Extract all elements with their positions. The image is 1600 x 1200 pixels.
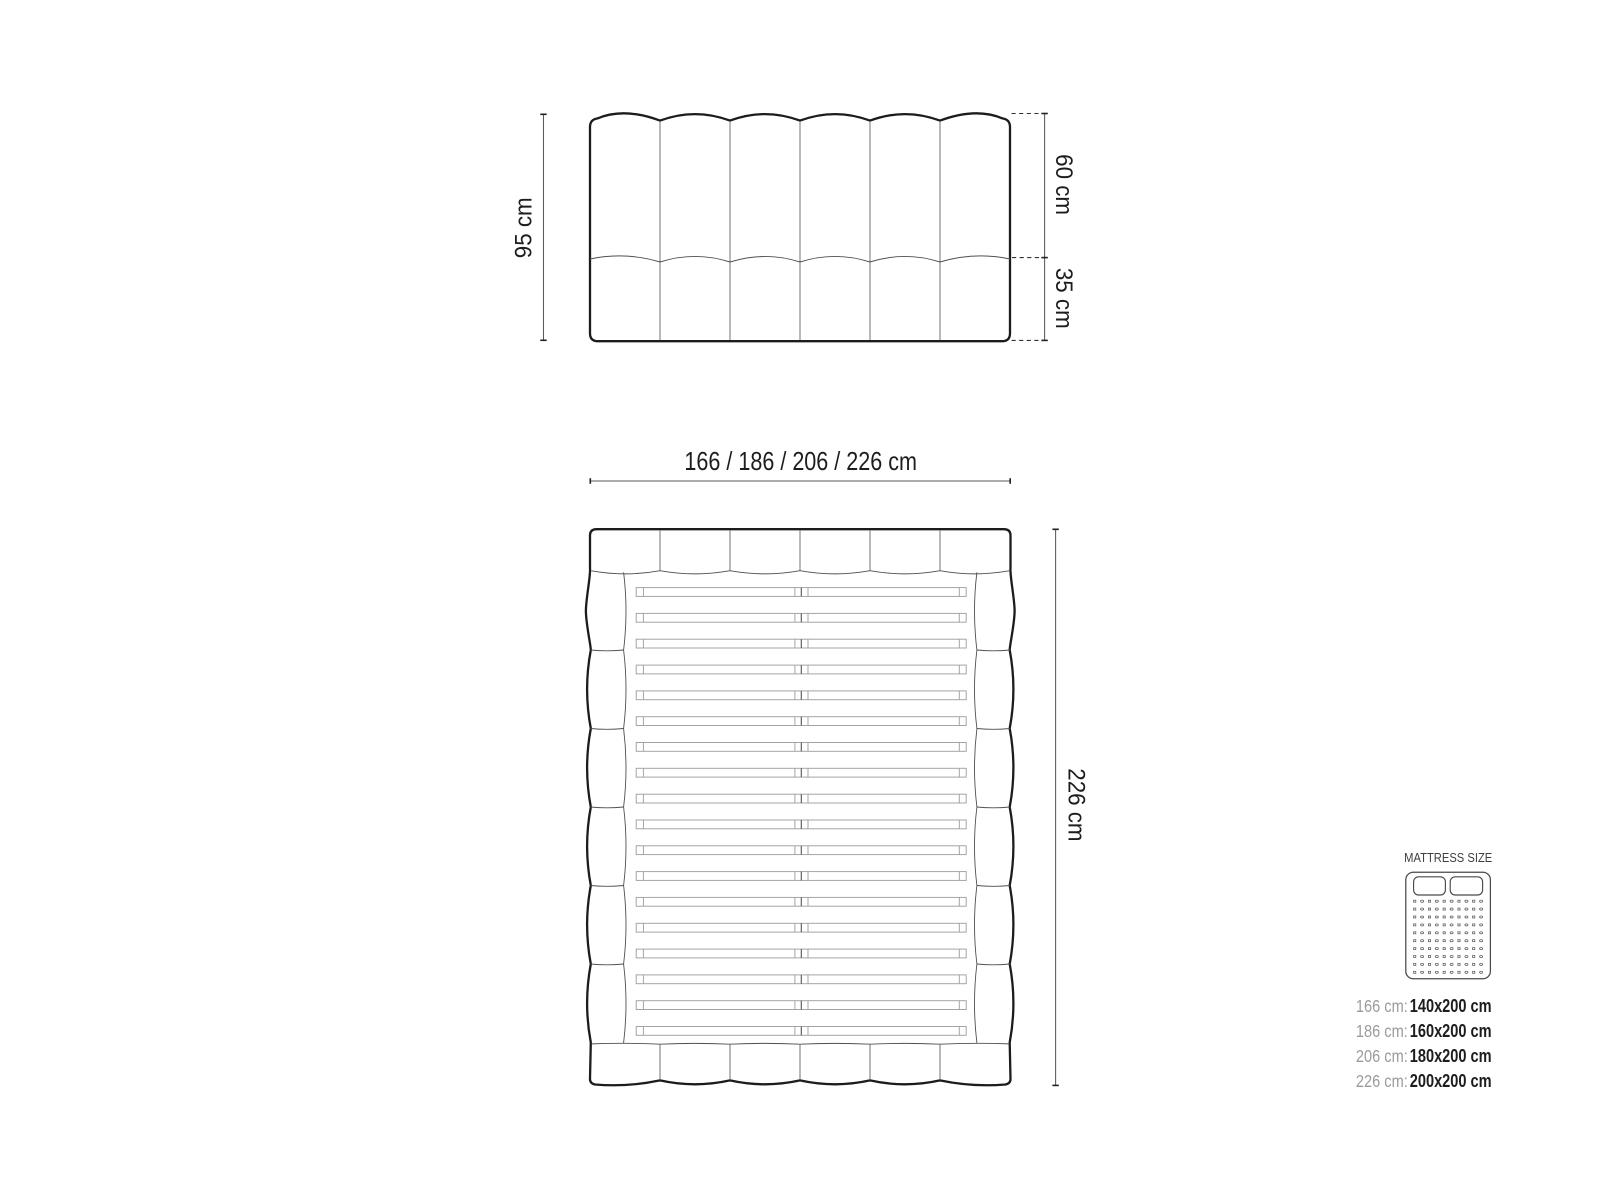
svg-text:60 cm: 60 cm [1051, 154, 1078, 215]
svg-text:166 cm:: 166 cm: [1356, 997, 1408, 1017]
svg-text:226 cm:: 226 cm: [1356, 1072, 1408, 1092]
svg-text:MATTRESS SIZE: MATTRESS SIZE [1404, 850, 1492, 865]
svg-text:166 / 186 / 206 / 226 cm: 166 / 186 / 206 / 226 cm [684, 447, 917, 476]
svg-text:200x200 cm: 200x200 cm [1410, 1070, 1492, 1091]
svg-text:140x200 cm: 140x200 cm [1410, 995, 1492, 1016]
svg-text:226 cm: 226 cm [1063, 768, 1090, 841]
svg-text:186 cm:: 186 cm: [1356, 1022, 1408, 1042]
svg-text:206 cm:: 206 cm: [1356, 1047, 1408, 1067]
svg-text:160x200 cm: 160x200 cm [1410, 1020, 1492, 1041]
svg-text:35 cm: 35 cm [1051, 268, 1078, 329]
svg-text:180x200 cm: 180x200 cm [1410, 1045, 1492, 1066]
svg-text:95 cm: 95 cm [509, 197, 536, 258]
